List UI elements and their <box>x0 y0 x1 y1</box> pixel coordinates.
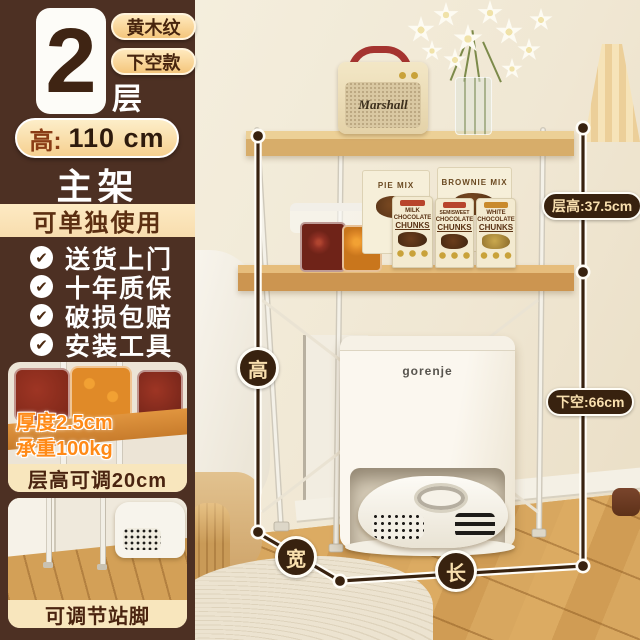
badge-wood-grain: 黄木纹 <box>111 13 196 40</box>
check-icon: ✔ <box>30 333 53 356</box>
width-dimension-label: 宽 <box>275 536 317 578</box>
thickness-overlay: 厚度2.5cm <box>16 406 113 435</box>
robot-vacuum-thumb <box>115 502 185 558</box>
top-shelf <box>246 131 574 156</box>
robot-vent <box>123 528 161 550</box>
bag-text: CHUNKS <box>395 222 429 230</box>
height-dimension-label: 高 <box>237 347 279 389</box>
flower <box>529 8 553 32</box>
bottom-clearance-label: 下空:66cm <box>546 388 634 416</box>
detail-thumb-feet: 可调节站脚 <box>8 498 187 628</box>
speaker-knob <box>399 72 406 79</box>
box-title: BROWNIE MIX <box>441 178 507 187</box>
floor-lamp-shade <box>584 44 640 142</box>
detail-thumb-shelf: 厚度2.5cm 承重100kg 层高可调20cm <box>8 362 187 492</box>
info-sidebar: 2 层 黄木纹 下空款 高: 110 cm 主架 可单独使用 ✔ 送货上门 ✔ … <box>0 0 195 640</box>
bag-label-band <box>443 202 466 208</box>
bag-text: WHITE <box>486 210 505 217</box>
bag-label-band <box>400 200 424 206</box>
check-icon: ✔ <box>30 275 53 298</box>
height-value: 110 cm <box>68 123 164 154</box>
badge-bottom-open-style: 下空款 <box>111 48 196 75</box>
chocolate-chips-art <box>482 234 509 249</box>
chocolate-chips-art <box>441 234 468 249</box>
adjustable-foot <box>97 564 107 570</box>
robot-vent <box>372 513 424 539</box>
check-icon: ✔ <box>30 304 53 327</box>
glass-vase <box>455 77 492 135</box>
marshall-speaker: Marshall <box>338 62 428 134</box>
robot-vent <box>455 513 495 537</box>
gold-medallions <box>393 249 432 258</box>
rack-foot-pole <box>100 498 106 564</box>
rack-foot-pole <box>46 498 52 564</box>
load-capacity-overlay: 承重100kg <box>16 432 113 461</box>
box-title: PIE MIX <box>378 181 414 190</box>
gold-medallions <box>477 251 515 260</box>
tier-unit: 层 <box>112 74 142 118</box>
product-photo: Marshall PIE MIX BROWNIE MIX MILK CHOCOL… <box>195 0 640 640</box>
gold-medallions <box>436 251 473 260</box>
bag-text: CHUNKS <box>479 224 513 232</box>
length-dimension-label: 长 <box>435 550 477 592</box>
flower <box>407 16 435 44</box>
flower <box>477 0 503 26</box>
adjustable-foot <box>43 562 53 568</box>
thumb-feet-scene <box>8 498 187 600</box>
thumb-caption: 可调节站脚 <box>8 600 187 628</box>
woven-rug <box>195 556 433 640</box>
wood-tray <box>612 488 640 516</box>
feature-list: ✔ 送货上门 ✔ 十年质保 ✔ 破损包赔 ✔ 安装工具 <box>0 243 195 359</box>
product-listing-image: { "sidebar": { "tier_number": "2", "tier… <box>0 0 640 640</box>
chocolate-chips-art <box>398 232 426 247</box>
speaker-knob <box>411 72 418 79</box>
speaker-brand-logo: Marshall <box>358 97 407 113</box>
height-label: 高: <box>29 121 61 156</box>
height-spec-pill: 高: 110 cm <box>15 118 179 158</box>
thumb-shelf-scene: 厚度2.5cm 承重100kg <box>8 362 187 464</box>
flower <box>421 40 443 62</box>
flower <box>433 2 459 28</box>
tier-height-label: 层高:37.5cm <box>542 192 640 220</box>
bag-text: SEMISWEET <box>439 210 469 217</box>
bag-text: MILK <box>405 208 420 215</box>
standalone-banner: 可单独使用 <box>0 204 195 237</box>
station-lid <box>340 336 515 351</box>
robot-lidar-disc <box>414 483 468 513</box>
robot-vacuum <box>358 476 508 548</box>
bag-label-band <box>484 202 508 208</box>
thumb-caption: 层高可调20cm <box>8 464 187 492</box>
middle-shelf <box>238 265 574 291</box>
flower <box>501 58 523 80</box>
flower <box>495 18 523 46</box>
flower <box>517 38 541 62</box>
station-brand-logo: gorenje <box>340 364 515 378</box>
feature-install-tools: ✔ 安装工具 <box>0 330 195 359</box>
tier-count: 2 <box>36 8 106 114</box>
white-chocolate-bag: WHITE CHOCOLATE CHUNKS <box>476 198 516 268</box>
speaker-grille: Marshall <box>345 82 421 128</box>
jar-dried-fruit <box>300 222 346 272</box>
check-icon: ✔ <box>30 246 53 269</box>
semisweet-chocolate-bag: SEMISWEET CHOCOLATE CHUNKS <box>435 198 474 268</box>
bag-text: CHUNKS <box>437 224 471 232</box>
milk-chocolate-bag: MILK CHOCOLATE CHUNKS <box>392 196 433 268</box>
